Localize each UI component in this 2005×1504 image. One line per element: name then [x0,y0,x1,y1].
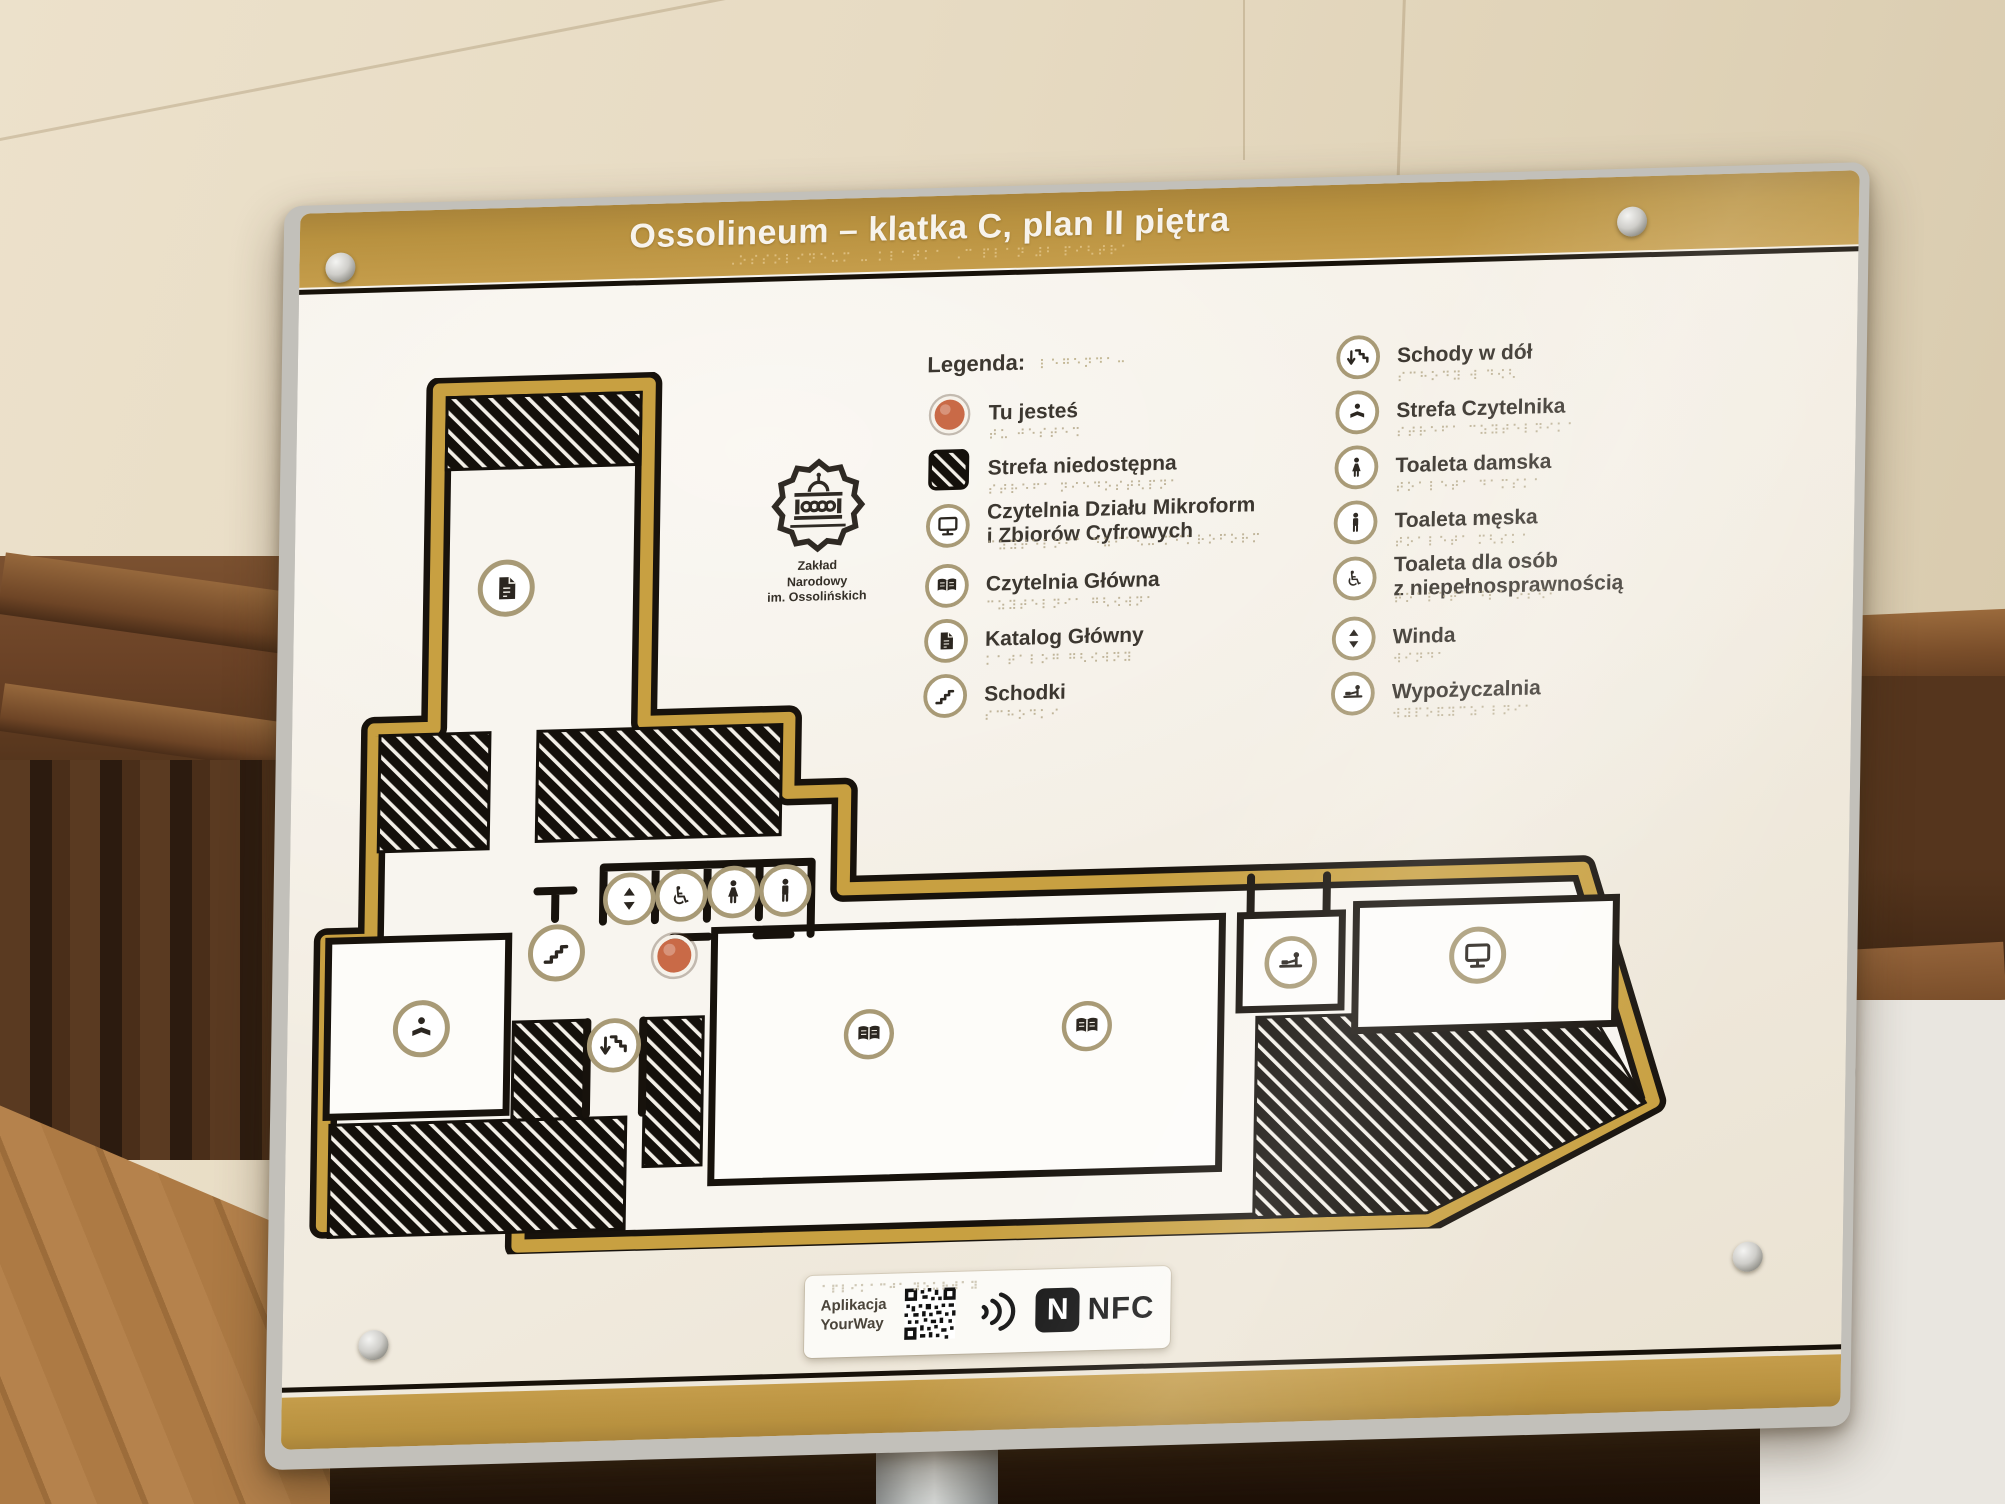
hatched-zone [536,725,782,842]
hatched-zone [328,1117,626,1237]
plan-icon-winda-elevator [605,874,654,923]
hatched-zone [446,392,641,469]
plan-icon-book-1 [846,1011,892,1058]
plan-icon-katalog-document [480,561,533,614]
plan-icon-you-are-here-dot [653,934,696,977]
plan-icon-stairs-down [589,1020,639,1071]
plan-icon-book-2 [1064,1003,1110,1050]
plan-icon-reader [395,1002,448,1055]
hatched-zone [378,733,490,852]
nfc-text: NFC [1087,1289,1154,1327]
radio-waves-icon [973,1282,1018,1341]
sign-face: Ossolineum – klatka C, plan II piętra ⠠⠕… [281,170,1860,1450]
hatched-zone [512,1020,586,1120]
photo-scene: Ossolineum – klatka C, plan II piętra ⠠⠕… [0,0,2005,1504]
wall-crease [0,0,753,151]
tactile-floorplan-sign: Ossolineum – klatka C, plan II piętra ⠠⠕… [281,170,1860,1450]
plan-icon-lending [1266,938,1315,987]
plan-icon-wheelchair [657,871,706,920]
app-name-line1: Aplikacja [821,1296,887,1317]
nfc-n-mark-icon: N [1035,1287,1080,1332]
wall-corner-2 [1243,0,1245,160]
floor-plan [306,343,1679,1260]
hatched-zone [1254,1006,1647,1217]
hatched-zone [643,1017,703,1167]
plan-icon-computer [1451,928,1504,981]
app-name-line2: YourWay [820,1315,886,1336]
plan-icon-schodki-stairs [530,926,583,979]
app-label: ⠁⠏⠇⠊⠅⠁⠉⠚⠁ ⠽⠕⠥⠗⠺⠁⠽ Aplikacja YourWay [804,1266,1171,1358]
room-czytelnia-glowna [711,916,1223,1182]
plan-icon-woman [709,867,758,916]
plan-icon-man [761,866,810,915]
